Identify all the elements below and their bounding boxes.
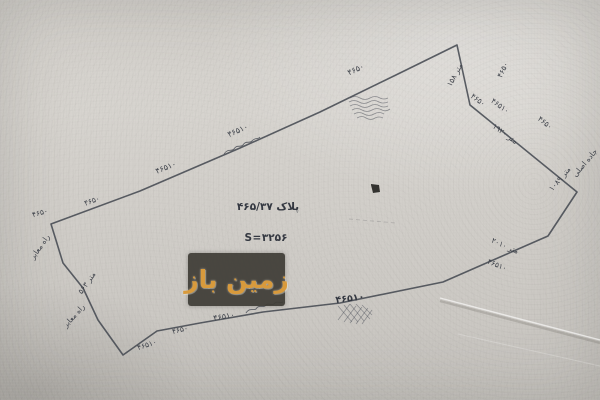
boundary-annotation: ۴۶۵۱۰ <box>490 97 511 115</box>
boundary-annotation: متر ۱۹۲۰ <box>491 122 519 145</box>
boundary-annotation: ۴۶۵۰ <box>469 92 486 108</box>
survey-map-photo: ۴۶۵۰۴۶۵۰۴۶۵۱۰۴۶۵۱۰۴۶۵۰متر ۱۵۸۴۶۵۰۴۶۵۰۴۶۵… <box>0 0 600 400</box>
boundary-annotation: راه معابر <box>62 303 86 329</box>
boundary-annotation: ۴۶۵۰ <box>83 195 101 208</box>
boundary-annotation: ۴۶۵۰ <box>496 61 510 79</box>
watermark-text: زمین باز <box>184 265 288 294</box>
boundary-annotation: ۴۶۵۱۰ <box>136 338 157 351</box>
boundary-annotation: ۴۶۵۰ <box>31 207 49 219</box>
boundary-annotation: راه معابر <box>29 233 51 260</box>
boundary-annotation: ۴۶۵۱۰ <box>213 311 236 323</box>
plot-number-label: پلاک ۴۶۵/۳۷ <box>237 201 299 213</box>
watermark-badge: زمین باز <box>188 253 285 306</box>
boundary-annotation: ۴۶۵۱۰ <box>155 160 178 175</box>
boundary-annotation: ۴۶۵۰ <box>536 115 553 131</box>
area-label: S=۳۲۵۶ <box>245 232 288 244</box>
boundary-annotation: ۴۶۵۰ <box>347 63 366 78</box>
boundary-annotation: متر ۵۶۳ <box>77 271 97 296</box>
boundary-annotation: متر ۱۵۸ <box>446 62 464 88</box>
boundary-annotation: جاده اصلی <box>571 148 598 179</box>
boundary-annotations-layer: ۴۶۵۰۴۶۵۰۴۶۵۱۰۴۶۵۱۰۴۶۵۰متر ۱۵۸۴۶۵۰۴۶۵۰۴۶۵… <box>0 0 600 400</box>
boundary-annotation: ۴۶۵۰ <box>171 324 188 335</box>
boundary-annotation: ۴۶۵۱۰ <box>335 293 365 306</box>
boundary-annotation: ۴۶۵۱۰ <box>486 258 507 273</box>
boundary-annotation: متر ۲۰۱۰ <box>490 237 519 256</box>
boundary-annotation: ۴۶۵۱۰ <box>227 123 250 139</box>
boundary-annotation: متر ۱۰۸۹ <box>548 166 572 193</box>
